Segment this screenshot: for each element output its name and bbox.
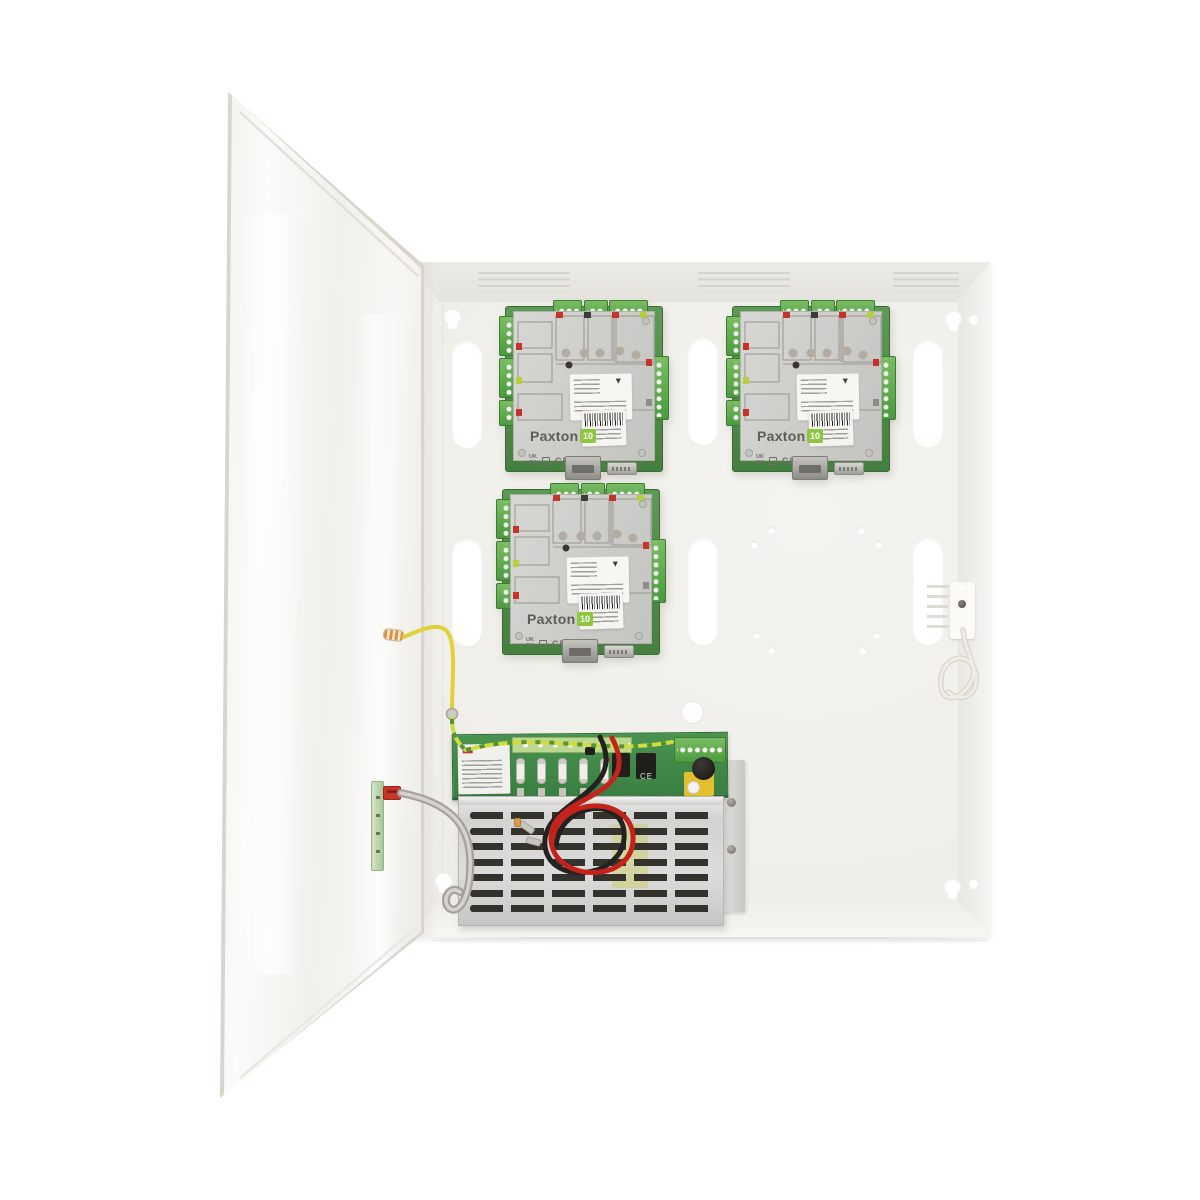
- psu-label-text-lines: [462, 760, 502, 789]
- door-ribbon-connector: [383, 786, 401, 800]
- psu-label-red-mark: [463, 749, 473, 753]
- psu-regulator: [612, 753, 630, 777]
- psu-component: [585, 747, 595, 755]
- psu-label: [458, 744, 511, 795]
- power-supply-unit: CE: [0, 0, 1200, 1200]
- fuse: [558, 758, 567, 784]
- product-photo-stage: ▼ Paxton 10 UKCA CE: [0, 0, 1200, 1200]
- psu-vent-slot-row: [470, 874, 716, 881]
- fuse-clip: [538, 788, 545, 796]
- psu-vent-slot-row: [470, 905, 716, 912]
- fuse: [579, 758, 588, 784]
- door-earth-stud-crimp: [382, 628, 404, 642]
- psu-vent-slot-row: [470, 812, 716, 819]
- psu-vent-slot-row: [470, 859, 716, 866]
- bracket-screw: [727, 845, 736, 854]
- fuse-clip: [559, 788, 566, 796]
- psu-output-terminal-strip: [512, 737, 632, 753]
- fuse-clip: [517, 788, 524, 796]
- psu-vent-slot-row: [470, 843, 716, 850]
- psu-status-led: [605, 757, 610, 762]
- fuse-clip: [580, 788, 587, 796]
- door-reflection: [354, 314, 400, 1014]
- crimp-heatshrink: [514, 818, 521, 827]
- fuse: [537, 758, 546, 784]
- psu-vent-slot-row: [470, 890, 716, 897]
- psu-vent-slot-grid: [470, 812, 716, 920]
- psu-ce-print: CE: [640, 772, 653, 781]
- fuse: [516, 758, 525, 784]
- psu-indicator-ring: [687, 781, 700, 794]
- psu-fuse-holder-cap: [692, 757, 715, 780]
- psu-vent-slot-row: [470, 828, 716, 835]
- door-reflection: [242, 214, 302, 974]
- bracket-screw: [727, 798, 736, 807]
- cabinet-door: [224, 94, 421, 1096]
